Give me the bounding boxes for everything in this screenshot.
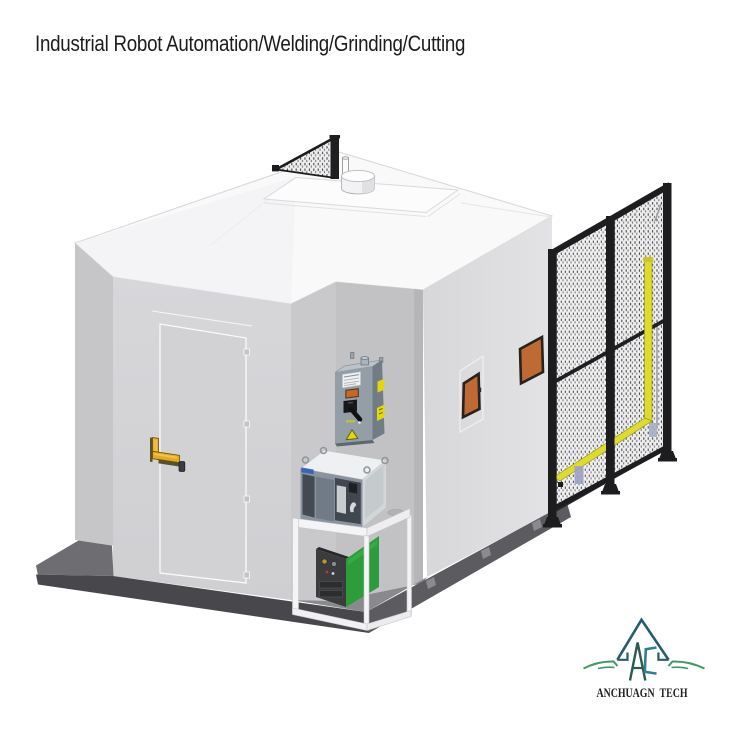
svg-text:ANCHUAGN TECH: ANCHUAGN TECH: [597, 685, 688, 700]
